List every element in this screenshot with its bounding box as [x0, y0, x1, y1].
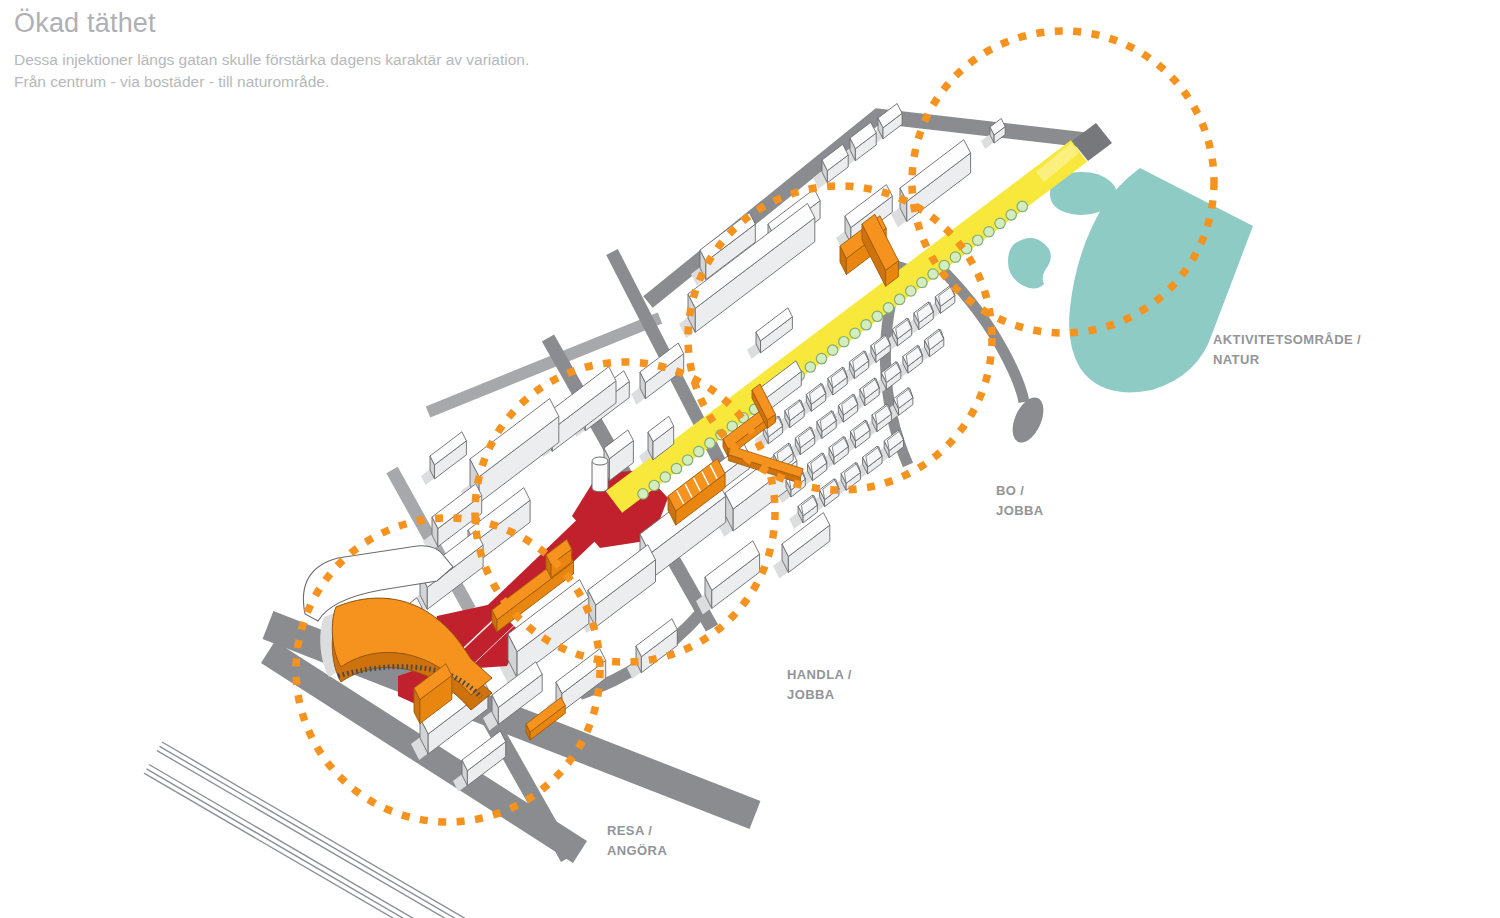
zone-label-resa-angora: RESA / ANGÖRA — [607, 821, 667, 861]
subtitle-line-1: Dessa injektioner längs gatan skulle för… — [14, 49, 529, 71]
house-block — [798, 495, 817, 523]
street-tree — [928, 269, 938, 279]
street-tree — [816, 353, 826, 363]
building-block — [782, 513, 830, 573]
house-block — [872, 404, 891, 432]
building-block — [900, 140, 971, 222]
house-block — [828, 367, 847, 395]
building-block — [878, 104, 902, 139]
zone-label-bo-jobba: BO / JOBBA — [996, 481, 1044, 521]
street-tree — [705, 438, 715, 448]
house-block — [806, 384, 825, 412]
railway-track — [149, 765, 484, 918]
railway-track — [147, 769, 482, 918]
house-block — [892, 318, 911, 346]
street-tree — [973, 235, 983, 245]
street-tree — [805, 362, 815, 372]
house-block — [785, 400, 804, 428]
house-block — [894, 388, 913, 416]
house-block — [838, 394, 857, 422]
street-tree — [872, 311, 882, 321]
axonometric-city-diagram — [0, 0, 1500, 918]
accent-building — [862, 214, 898, 286]
street-tree — [839, 336, 849, 346]
cul-de-sac — [1006, 393, 1049, 447]
diagram-canvas: Ökad täthet Dessa injektioner längs gata… — [0, 0, 1500, 918]
street-tree — [939, 260, 949, 270]
street-tree — [1006, 210, 1016, 220]
house-block — [903, 346, 922, 374]
house-block — [808, 453, 827, 481]
street-tree — [917, 277, 927, 287]
house-block — [860, 378, 879, 406]
street-tree — [995, 218, 1005, 228]
street-tree — [906, 286, 916, 296]
house-block — [935, 286, 954, 314]
house-block — [863, 446, 882, 474]
street-tree — [671, 463, 681, 473]
street-tree — [850, 328, 860, 338]
street-tree — [894, 294, 904, 304]
street-tree — [883, 303, 893, 313]
building-block — [756, 308, 792, 353]
pond — [1008, 238, 1051, 289]
street-tree — [950, 252, 960, 262]
house-block — [925, 329, 944, 357]
house-block — [817, 411, 836, 439]
street-tree — [638, 489, 648, 499]
railway-track — [144, 773, 479, 918]
street-tree — [984, 227, 994, 237]
building-block — [636, 619, 677, 673]
tower-building — [592, 462, 608, 492]
house-block — [829, 437, 848, 465]
tower-roof — [592, 457, 608, 465]
house-block — [914, 302, 933, 330]
street-tree — [1017, 201, 1027, 211]
street-tree — [861, 320, 871, 330]
house-block — [849, 351, 868, 379]
street-tree — [682, 455, 692, 465]
house-block — [851, 420, 870, 448]
street-tree — [660, 472, 670, 482]
zone-label-aktivitetsomrade-natur: AKTIVITETSOMRÅDE / NATUR — [1213, 330, 1361, 370]
building-block — [705, 541, 760, 609]
house-block — [795, 427, 814, 455]
zone-label-handla-jobba: HANDLA / JOBBA — [787, 665, 852, 705]
subtitle-line-2: Från centrum - via bostäder - till natur… — [14, 71, 529, 93]
page-title: Ökad täthet — [14, 8, 529, 39]
building-block — [588, 545, 656, 627]
street-tree — [694, 446, 704, 456]
street-tree — [827, 345, 837, 355]
building-block — [430, 432, 466, 479]
title-block: Ökad täthet Dessa injektioner längs gata… — [14, 8, 529, 94]
street-tree — [649, 480, 659, 490]
